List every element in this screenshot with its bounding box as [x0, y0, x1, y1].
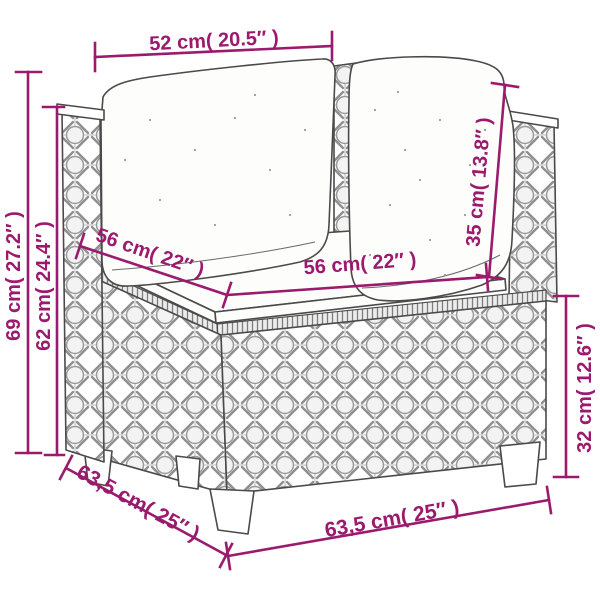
dim-label-pillow-width-top: 52 cm( 20.5″ ) — [149, 27, 280, 56]
dim-base-width: 63,5 cm( 25″ ) — [226, 487, 551, 569]
left-armrest-post — [57, 104, 104, 462]
leg-right — [500, 442, 540, 487]
dim-label-total-height: 69 cm( 27.2″ ) — [3, 211, 25, 341]
dim-arm-height: 62 cm( 24.4″ ) — [33, 107, 64, 455]
base-face-right — [221, 301, 546, 494]
leg-back-left — [176, 456, 200, 489]
dim-tick — [60, 456, 72, 479]
product-dimension-diagram: 52 cm( 20.5″ ) 69 cm( 27.2″ ) 62 cm( 24.… — [0, 0, 600, 600]
dim-label-arm-height: 62 cm( 24.4″ ) — [33, 221, 55, 351]
dim-label-base-width: 63,5 cm( 25″ ) — [323, 496, 461, 542]
dimension-diagram-canvas: 52 cm( 20.5″ ) 69 cm( 27.2″ ) 62 cm( 24.… — [0, 0, 600, 600]
dim-label-base-height: 32 cm( 12.6″ ) — [574, 323, 596, 453]
right-back-post — [508, 111, 558, 302]
dim-base-height: 32 cm( 12.6″ ) — [554, 296, 596, 477]
leg-front-corner — [210, 489, 254, 534]
